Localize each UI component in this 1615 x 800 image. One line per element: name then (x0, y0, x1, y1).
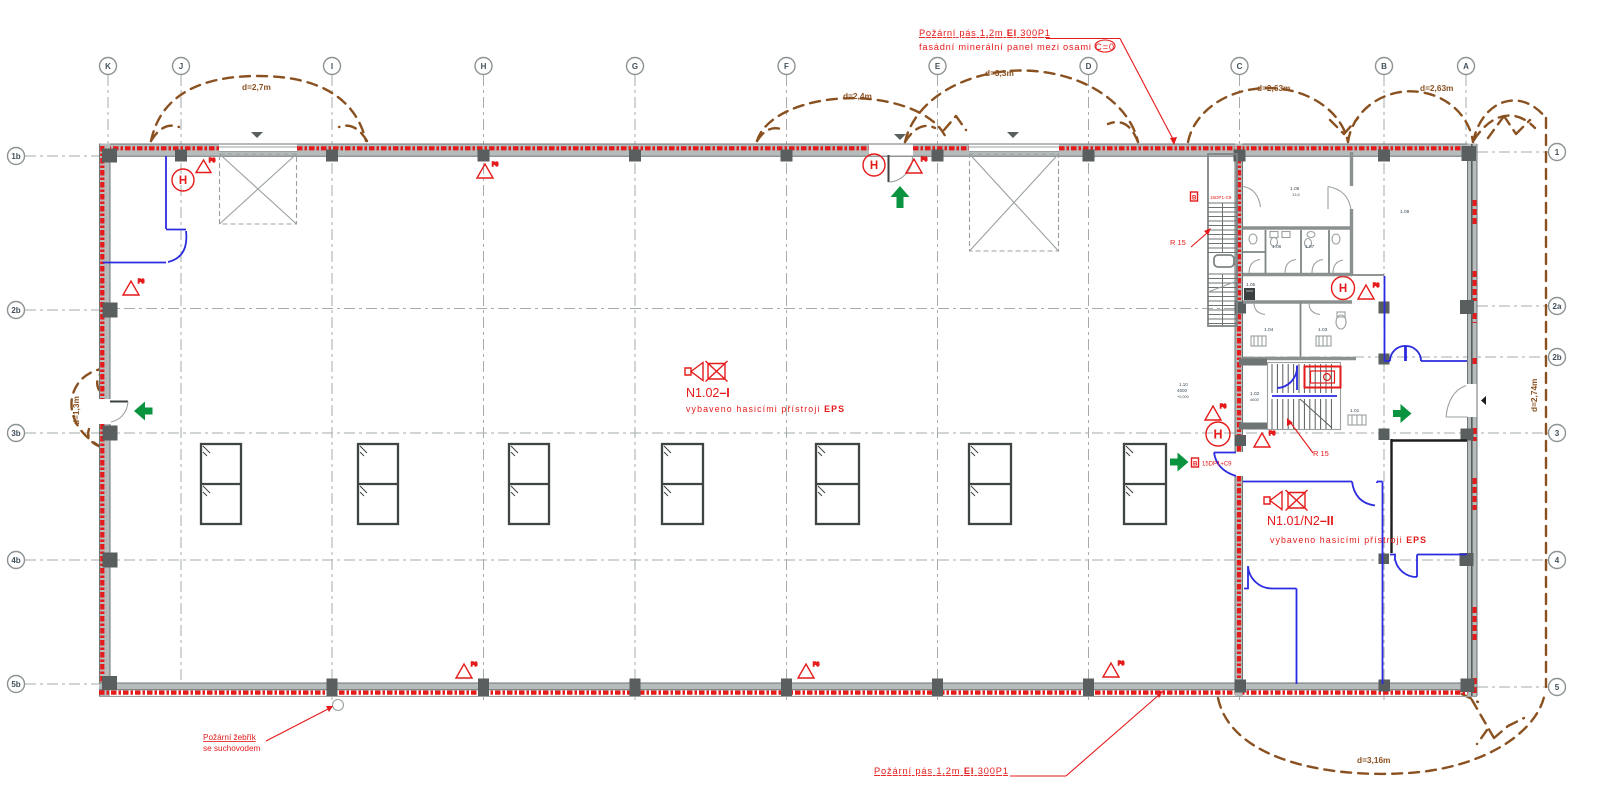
svg-text:2b: 2b (11, 306, 20, 315)
svg-text:B: B (1381, 62, 1387, 71)
svg-text:N1.01/N2–II: N1.01/N2–II (1267, 514, 1334, 528)
svg-text:P6: P6 (1220, 404, 1226, 410)
svg-text:+0,000: +0,000 (1177, 395, 1189, 399)
svg-text:H: H (1339, 283, 1347, 295)
svg-text:15DP1-C9: 15DP1-C9 (1210, 195, 1232, 200)
svg-text:1b: 1b (11, 152, 20, 161)
svg-text:d=2,63m: d=2,63m (1420, 83, 1453, 93)
svg-text:P6: P6 (1118, 661, 1124, 667)
svg-text:3: 3 (1555, 429, 1560, 438)
svg-text:se suchovodem: se suchovodem (203, 744, 261, 753)
svg-text:d=2,63m: d=2,63m (1257, 83, 1290, 93)
svg-text:d=3,16m: d=3,16m (1357, 755, 1390, 765)
svg-text:15DP1+C9: 15DP1+C9 (1202, 462, 1232, 468)
svg-text:B: B (1192, 196, 1197, 202)
svg-text:K: K (105, 62, 111, 71)
svg-text:N1.02–I: N1.02–I (686, 386, 730, 400)
svg-text:2b: 2b (1552, 353, 1561, 362)
svg-text:P6: P6 (1269, 431, 1275, 437)
svg-text:5: 5 (1555, 683, 1560, 692)
svg-text:E: E (935, 62, 941, 71)
svg-text:d=3,3m: d=3,3m (985, 68, 1014, 78)
svg-text:1.07: 1.07 (1305, 244, 1315, 250)
svg-text:d=2,74m: d=2,74m (1529, 379, 1539, 412)
svg-text:3b: 3b (11, 429, 20, 438)
svg-text:4600: 4600 (1250, 397, 1260, 402)
svg-text:B: B (1193, 462, 1198, 468)
svg-text:1.10: 1.10 (1179, 382, 1188, 387)
svg-text:A: A (1463, 62, 1469, 71)
svg-text:P6: P6 (813, 662, 819, 668)
svg-text:1.01: 1.01 (1350, 408, 1360, 414)
svg-text:4b: 4b (11, 556, 20, 565)
svg-text:P6: P6 (921, 157, 927, 163)
svg-text:fasádní minerální panel mezi o: fasádní minerální panel mezi osami C=0 (919, 42, 1114, 52)
svg-text:4: 4 (1555, 556, 1560, 565)
svg-text:H: H (481, 62, 487, 71)
svg-text:C: C (1237, 62, 1243, 71)
svg-text:G: G (632, 62, 638, 71)
svg-text:4600: 4600 (1177, 388, 1188, 393)
svg-text:vybaveno hasicími přístroji EP: vybaveno hasicími přístroji EPS (1270, 535, 1426, 545)
svg-text:d=2,7m: d=2,7m (242, 82, 271, 92)
svg-text:1: 1 (1555, 148, 1560, 157)
svg-text:d=1,3m: d=1,3m (71, 396, 81, 425)
svg-text:P6: P6 (1373, 283, 1379, 289)
svg-text:H: H (870, 160, 878, 172)
svg-text:P6: P6 (471, 662, 477, 668)
svg-text:1.05: 1.05 (1246, 282, 1256, 288)
svg-text:vybaveno hasicími přístroji EP: vybaveno hasicími přístroji EPS (686, 404, 844, 414)
svg-text:d=2,4m: d=2,4m (843, 91, 872, 101)
svg-text:1.03: 1.03 (1318, 327, 1328, 333)
svg-text:P6: P6 (138, 279, 144, 285)
svg-text:1.04: 1.04 (1264, 327, 1274, 333)
svg-text:13,5: 13,5 (1292, 192, 1301, 197)
svg-text:Požární žebřík: Požární žebřík (203, 733, 257, 742)
svg-text:1.06: 1.06 (1272, 244, 1282, 250)
svg-text:1.09: 1.09 (1400, 209, 1410, 215)
svg-text:D: D (1086, 62, 1092, 71)
svg-text:Požární pás 1,2m EI 300P1: Požární pás 1,2m EI 300P1 (874, 766, 1008, 776)
svg-text:J: J (179, 62, 183, 71)
svg-text:R 15: R 15 (1313, 449, 1329, 458)
svg-text:H: H (179, 175, 187, 187)
svg-text:Požární pás 1,2m EI 300P1: Požární pás 1,2m EI 300P1 (919, 28, 1050, 38)
svg-text:P6: P6 (492, 162, 498, 168)
svg-text:H: H (1213, 428, 1222, 442)
svg-text:I: I (331, 62, 333, 71)
svg-text:R 15: R 15 (1170, 238, 1186, 247)
svg-text:5b: 5b (11, 680, 20, 689)
svg-text:F: F (784, 62, 789, 71)
svg-text:2a: 2a (1553, 302, 1562, 311)
svg-text:P6: P6 (209, 158, 215, 164)
